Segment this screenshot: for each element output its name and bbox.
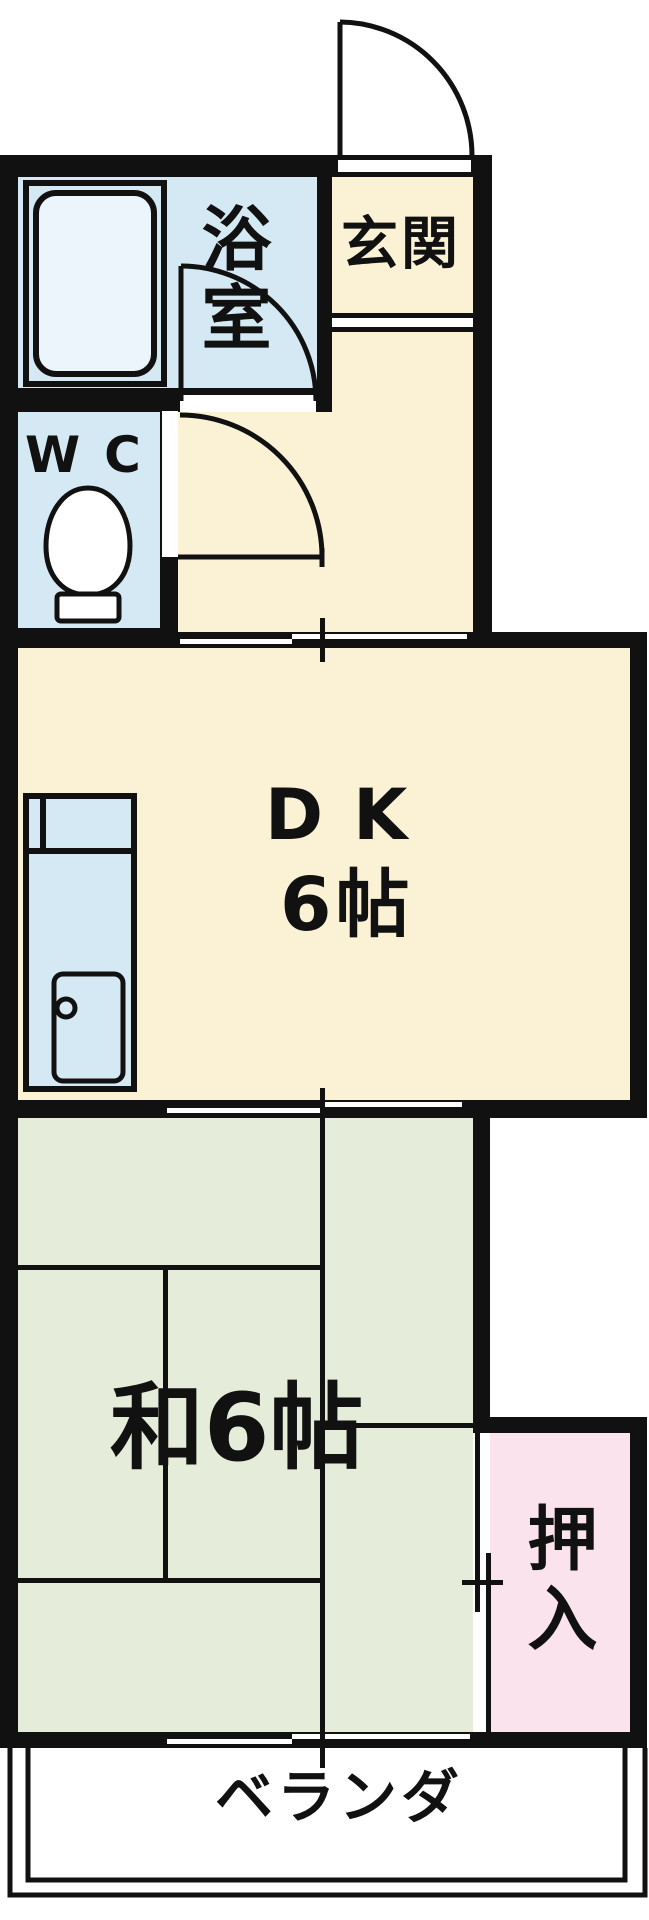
floor-plan: 玄関 浴室 WC DK 6帖 和6帖 押入 ベランダ <box>0 0 649 1920</box>
oshiire-east-wall <box>630 1417 647 1748</box>
bathroom-label: 浴室 <box>196 202 266 360</box>
toilet-tank <box>57 594 119 621</box>
wc-south-wall <box>0 628 178 648</box>
entrance-opening <box>338 160 471 172</box>
bathroom-door-opening <box>180 395 316 412</box>
tatami-line-horizontal-lower <box>18 1578 322 1583</box>
dk-size-label: 6帖 <box>280 868 414 942</box>
veranda-label: ベランダ <box>215 1768 463 1826</box>
bathroom-genkan-wall <box>317 172 332 410</box>
washitsu-east-wall <box>473 1118 490 1433</box>
wc-label: WC <box>25 430 165 480</box>
stove-burner <box>57 999 75 1017</box>
oshiire-north-wall <box>478 1417 647 1433</box>
entrance-door <box>340 22 472 157</box>
oshiire-fusuma-right-panel <box>486 1553 491 1732</box>
toilet-bowl <box>46 488 130 595</box>
entrance-door-arc <box>340 22 472 156</box>
genkan-step-inner <box>331 318 473 327</box>
dk-washitsu-slider-left <box>167 1108 320 1113</box>
hallway-floor <box>178 408 473 636</box>
genkan-corridor-floor <box>331 327 473 417</box>
dk-washitsu-slider-right <box>324 1102 462 1107</box>
bathtub <box>26 183 164 384</box>
oshiire-center-mark <box>462 1580 503 1585</box>
genkan-label: 玄関 <box>341 216 461 273</box>
east-wall-upper <box>473 155 492 633</box>
oshiire-fusuma-left-panel <box>475 1433 480 1612</box>
hall-dk-slider-left <box>180 639 292 644</box>
oshiire-label: 押入 <box>522 1502 592 1662</box>
veranda-slider-right <box>292 1734 470 1739</box>
tatami-line-horizontal-upper <box>18 1265 322 1270</box>
stove <box>54 974 123 1081</box>
kitchen-counter <box>23 796 137 1089</box>
hall-dk-center-mark <box>320 618 325 662</box>
veranda-slider-left <box>167 1739 292 1744</box>
bathtub-inner <box>36 193 154 374</box>
dk-label: DK <box>265 780 437 850</box>
washitsu-label: 和6帖 <box>110 1382 363 1476</box>
toilet <box>46 488 130 621</box>
hall-dk-slider-right <box>292 634 467 639</box>
dk-east-wall <box>630 632 647 1118</box>
